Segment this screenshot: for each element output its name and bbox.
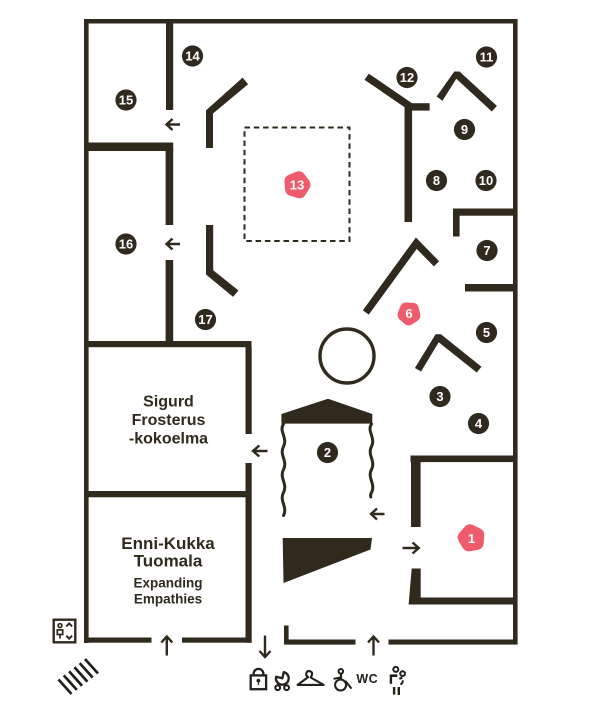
svg-text:9: 9	[461, 122, 468, 137]
svg-text:3: 3	[436, 389, 443, 404]
svg-text:-kokoelma: -kokoelma	[129, 431, 208, 448]
svg-text:14: 14	[185, 49, 200, 64]
svg-text:12: 12	[400, 70, 414, 85]
svg-text:7: 7	[483, 243, 490, 258]
svg-text:Expanding: Expanding	[133, 576, 202, 591]
svg-text:10: 10	[479, 173, 493, 188]
svg-text:Tuomala: Tuomala	[134, 552, 203, 571]
svg-text:Frosterus: Frosterus	[132, 412, 206, 429]
svg-text:2: 2	[324, 445, 331, 460]
svg-text:15: 15	[119, 93, 133, 108]
svg-text:5: 5	[483, 325, 490, 340]
svg-text:1: 1	[468, 531, 475, 546]
svg-text:16: 16	[119, 237, 133, 252]
svg-text:4: 4	[475, 416, 483, 431]
svg-text:Sigurd: Sigurd	[143, 394, 194, 411]
svg-text:11: 11	[480, 50, 494, 65]
svg-text:Empathies: Empathies	[134, 592, 202, 607]
svg-text:17: 17	[198, 312, 212, 327]
svg-text:WC: WC	[356, 672, 378, 686]
svg-text:Enni-Kukka: Enni-Kukka	[121, 534, 215, 553]
svg-text:6: 6	[405, 306, 412, 321]
svg-text:8: 8	[433, 173, 440, 188]
svg-text:13: 13	[290, 178, 304, 193]
